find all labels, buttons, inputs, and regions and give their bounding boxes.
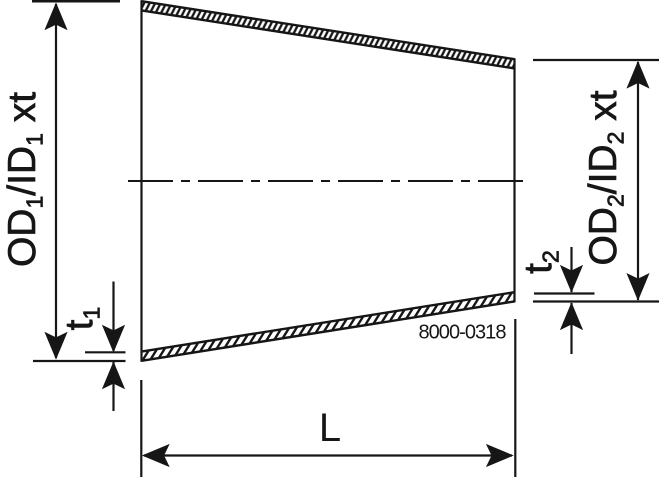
svg-text:OD1/ID1 xt: OD1/ID1 xt xyxy=(1,92,48,267)
svg-text:OD2/ID2 xt: OD2/ID2 xt xyxy=(582,90,629,265)
svg-text:8000-0318: 8000-0318 xyxy=(418,322,506,344)
svg-text:L: L xyxy=(319,406,341,450)
